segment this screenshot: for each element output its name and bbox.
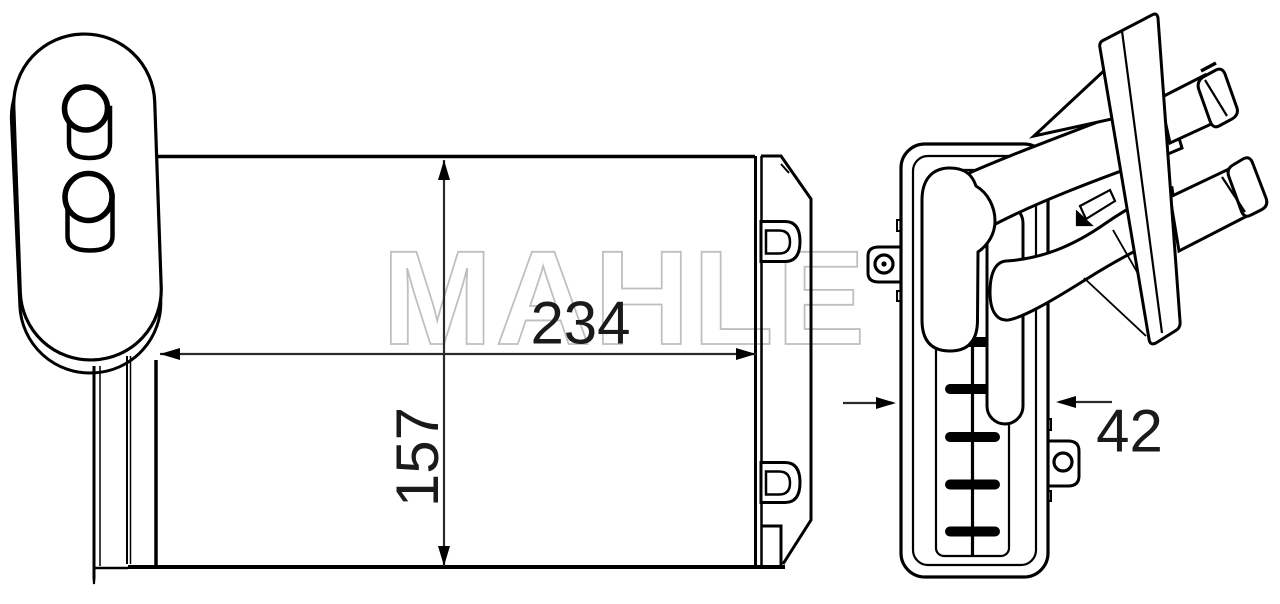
svg-text:157: 157 [384,407,451,507]
svg-text:234: 234 [530,290,630,357]
svg-text:42: 42 [1096,398,1163,465]
